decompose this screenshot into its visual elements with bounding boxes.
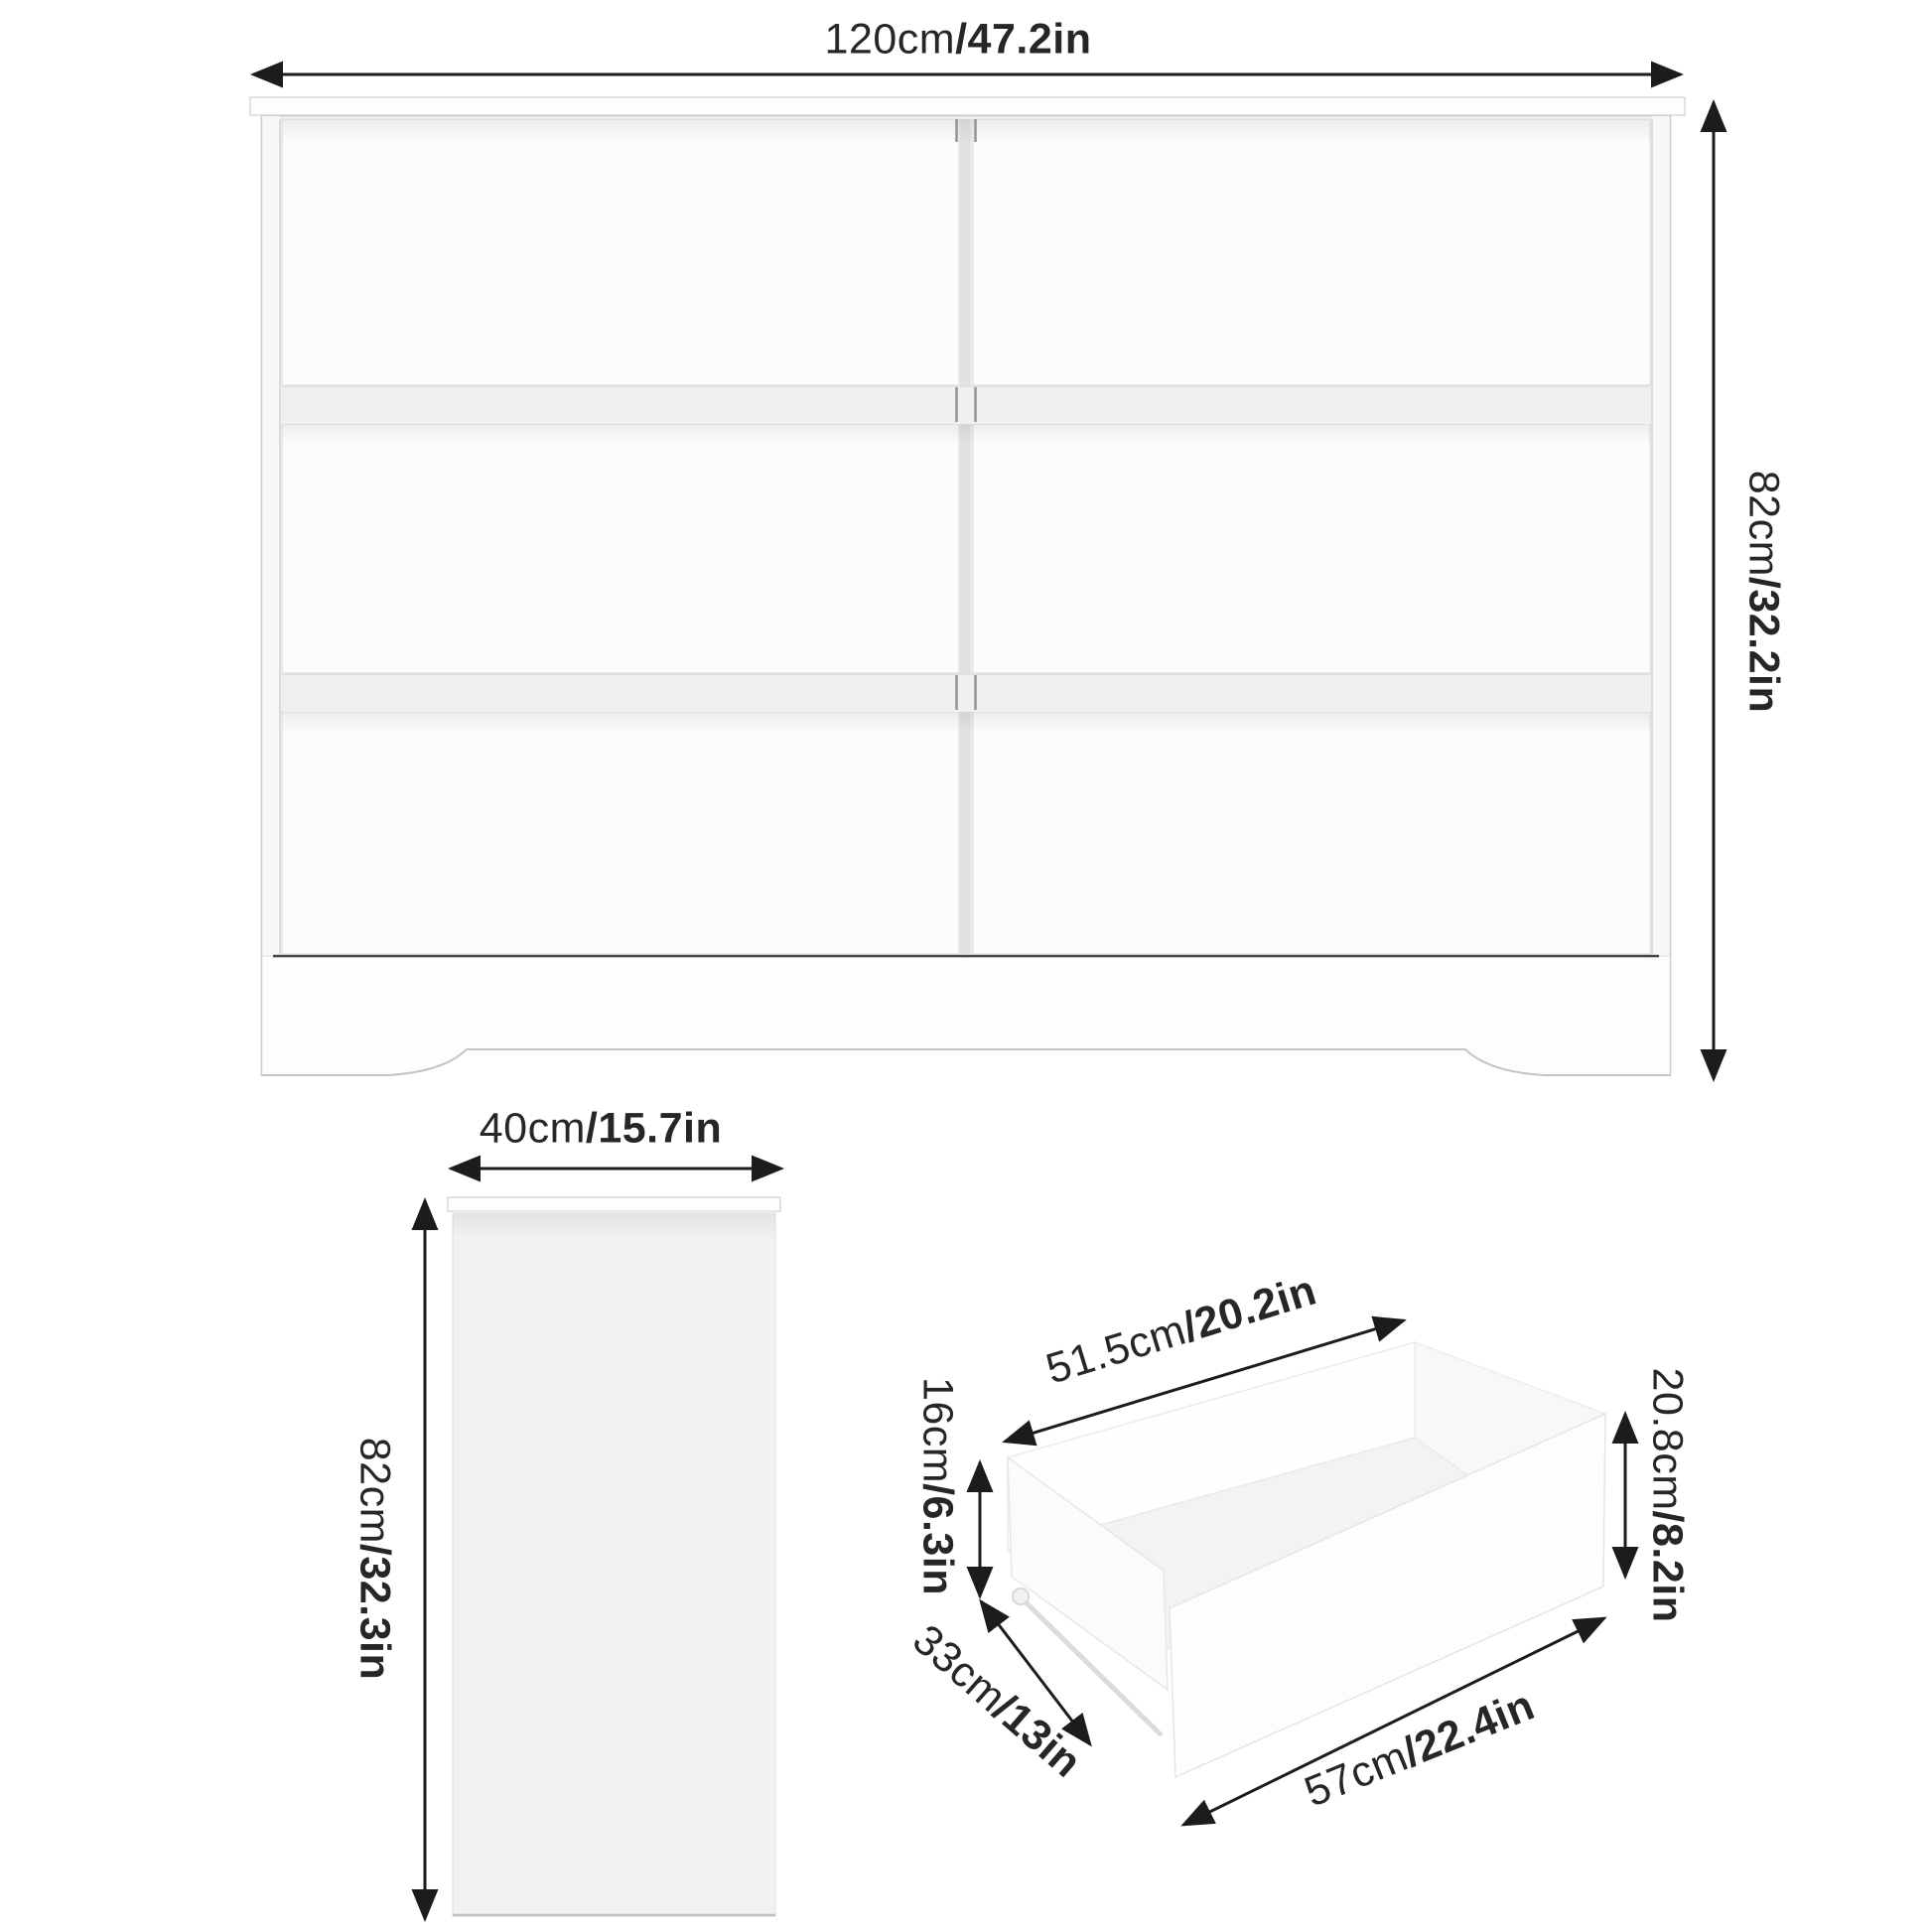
side-top-slab [448,1197,780,1211]
drawer-front-r3c1 [282,712,959,954]
side-panel [453,1211,775,1916]
side-width-metric: 40cm [480,1105,586,1153]
drawer-front-r1c2 [973,119,1650,385]
front-row-gap-1 [282,385,1650,424]
front-shadow-row3 [282,712,1650,734]
side-shadow-top [453,1213,775,1237]
front-height-label: 82cm/32.2in [1739,471,1788,714]
dresser-front-view [250,74,1714,1079]
dimension-diagram: 120cm/47.2in 82cm/32.2in 40cm/15.7in 82c… [0,0,1932,1932]
front-width-label: 120cm/47.2in [825,16,1092,65]
drawer-front-r2c1 [282,424,959,673]
drawer-inner-height-imperial: /6.3in [914,1483,962,1595]
front-apron-bottom-edge [261,1049,1671,1075]
drawer-front-r2c2 [973,424,1650,673]
drawer-front-r1c1 [282,119,959,385]
front-left-stile [261,116,280,956]
drawer-inner-height-label: 16cm/6.3in [913,1377,962,1595]
drawer-front-height-imperial: /8.2in [1644,1511,1692,1623]
front-width-metric: 120cm [825,16,956,64]
drawer-inner-height-metric: 16cm [914,1377,962,1483]
side-width-imperial: /15.7in [586,1105,722,1153]
side-height-imperial: /32.3in [351,1544,399,1680]
front-shadow-row2 [282,424,1650,446]
drawer-front-height-metric: 20.8cm [1644,1368,1692,1511]
front-right-stile [1652,116,1671,956]
front-width-imperial: /47.2in [955,16,1091,64]
front-height-metric: 82cm [1740,471,1788,577]
front-shadow-top [282,119,1650,145]
drawer-front-height-label: 20.8cm/8.2in [1643,1368,1692,1623]
dresser-side-view [425,1169,781,1919]
drawer-rail-knob [1013,1588,1029,1604]
front-center-gap [960,119,971,954]
side-height-label: 82cm/32.3in [350,1438,399,1681]
front-apron [261,956,1671,1075]
side-width-label: 40cm/15.7in [480,1105,723,1154]
front-top-slab [250,97,1685,115]
front-row-gap-2 [282,673,1650,712]
front-height-imperial: /32.2in [1740,577,1788,713]
side-height-metric: 82cm [351,1438,399,1544]
drawer-front-r3c2 [973,712,1650,954]
